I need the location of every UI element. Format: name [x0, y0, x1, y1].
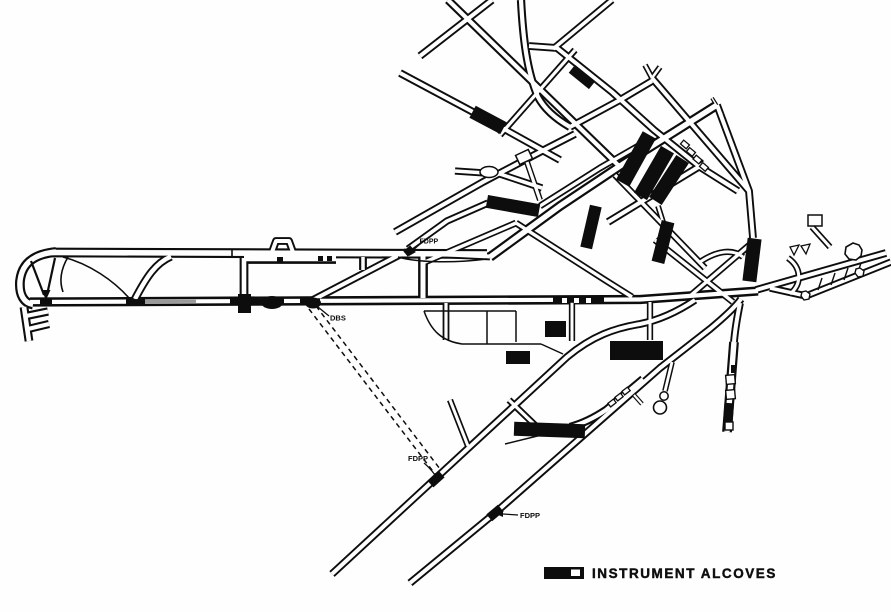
svg-text:FDPP: FDPP — [420, 239, 439, 246]
svg-text:DBS: DBS — [330, 314, 346, 323]
svg-text:FDPP: FDPP — [520, 511, 540, 520]
svg-text:INSTRUMENT ALCOVES: INSTRUMENT ALCOVES — [592, 566, 777, 581]
svg-text:FDPP: FDPP — [408, 454, 428, 463]
